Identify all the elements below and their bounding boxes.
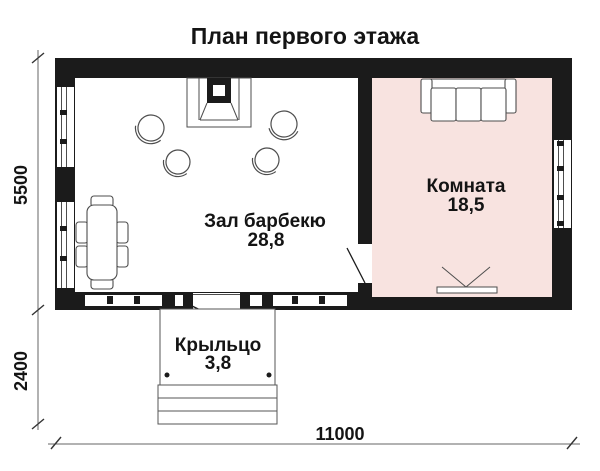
dining-chair: [116, 246, 128, 267]
floor-plan-drawing: План первого этажа: [0, 0, 600, 471]
dining-chair: [116, 222, 128, 243]
bbq-hall-label: Зал барбекю: [204, 211, 326, 232]
dining-chair: [76, 222, 88, 243]
bbq-hall-area: 28,8: [248, 230, 285, 251]
dining-chair: [76, 246, 88, 267]
porch-steps: [158, 385, 277, 424]
sofa-cushion: [456, 88, 481, 121]
window-right: [554, 140, 571, 228]
sofa-armrest: [421, 79, 432, 113]
sofa-cushion: [481, 88, 506, 121]
dimension-bottom: [48, 437, 580, 449]
dim-5500: 5500: [11, 165, 31, 205]
porch-area: 3,8: [205, 353, 231, 374]
porch-post: [165, 373, 170, 378]
dining-table: [87, 205, 117, 280]
page-title: План первого этажа: [191, 23, 420, 49]
window-left-lower: [57, 202, 74, 288]
floor-plan-page: План первого этажа: [0, 0, 600, 471]
sofa-cushion: [431, 88, 456, 121]
dim-11000: 11000: [315, 424, 364, 444]
porch-post: [267, 373, 272, 378]
room-area: 18,5: [448, 195, 485, 216]
sofa-armrest: [505, 79, 516, 113]
dimension-left: [32, 50, 44, 430]
sofa: [421, 79, 516, 121]
room-label: Комната: [427, 176, 506, 197]
porch-door-opening: [193, 293, 240, 310]
dim-2400: 2400: [11, 351, 31, 391]
fireplace: [187, 78, 251, 127]
window-left-upper: [57, 87, 74, 167]
